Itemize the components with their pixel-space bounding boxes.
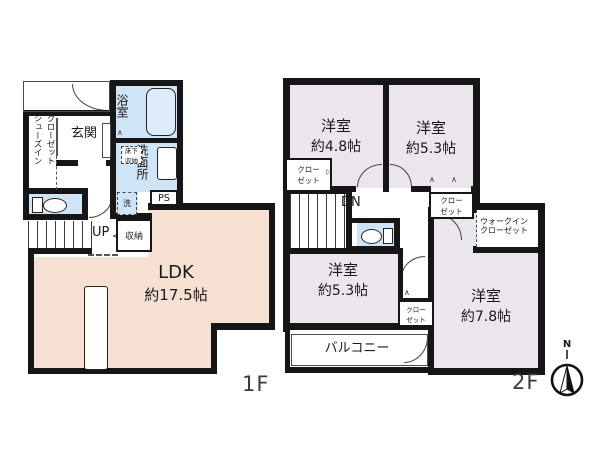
stairs-down-label: DN [341, 196, 361, 211]
balcony-label: バルコニー [325, 342, 390, 356]
wall [82, 194, 88, 220]
room-ldk [211, 257, 269, 323]
open-boundary-dashed [88, 254, 118, 256]
entrance-step [102, 123, 111, 158]
room-bedroom53b-label: 洋室 [328, 262, 358, 279]
wall [116, 138, 177, 143]
floor-label-1f: 1F [242, 372, 269, 396]
floor-plan: 玄関 シューズイン クローゼット 浴室 洗面所 床下 収納 洗 PS UP < … [0, 0, 600, 450]
wall [211, 323, 275, 330]
wall [411, 186, 431, 192]
wall [352, 218, 400, 223]
room-ldk-label: LDK [158, 263, 194, 283]
wall [283, 78, 480, 85]
room-bedroom48-size: 約4.8帖 [311, 140, 361, 155]
wall [285, 367, 434, 373]
wall [473, 203, 545, 210]
room-bedroom53a-size: 約5.3帖 [406, 142, 456, 157]
stairs-up-label: UP [92, 226, 109, 241]
room-ldk-size: 約17.5帖 [144, 287, 207, 304]
closet-box-2f-b: クロー ゼット [429, 192, 474, 219]
compass-north-label: N [563, 339, 571, 350]
closet-box-2f-a: クロー ゼット [285, 158, 332, 192]
wall [23, 214, 88, 220]
room-bathroom-label: 浴室 [116, 94, 128, 118]
folding-door-mark: ∧ [451, 176, 457, 184]
folding-door-mark: ∧ [429, 176, 435, 184]
pipe-space-box: PS [150, 190, 178, 206]
wall [473, 85, 480, 210]
kitchen-counter [84, 286, 108, 370]
wall [23, 110, 29, 220]
wall [330, 186, 356, 192]
toilet-tank-2f [383, 228, 393, 244]
washer-space-box: 洗 [117, 192, 137, 215]
wall [538, 210, 545, 375]
wall [383, 85, 389, 192]
partition-line [56, 118, 58, 156]
wall [110, 80, 183, 86]
folding-door-mark: ∧ [117, 129, 123, 137]
wall [283, 248, 403, 254]
toilet-bowl-2f [361, 229, 382, 244]
folding-door-mark: ∧ [404, 289, 410, 297]
room-bedroom48-label: 洋室 [321, 118, 351, 135]
wall [211, 330, 217, 374]
stairs-1f [28, 221, 92, 248]
toilet-bowl-1f [43, 198, 67, 213]
bedroom53b-door-arc [401, 256, 425, 278]
room-shoes-closet-label: シューズイン クローゼット [31, 114, 56, 165]
room-bedroom53a-label: 洋室 [416, 120, 446, 137]
entrance-porch-outline [23, 81, 110, 112]
stairs-2f [290, 194, 346, 248]
wall [28, 252, 34, 374]
wall [56, 160, 78, 166]
floor-label-2f: 2F [512, 370, 539, 394]
bathtub [146, 88, 176, 136]
wall [269, 210, 275, 330]
walkin-closet-label: ウォークイン クローゼット [480, 217, 528, 235]
closet-slide-mark: ▷ [326, 169, 331, 176]
room-ldk [148, 210, 269, 257]
wall [398, 254, 403, 302]
wall [28, 368, 217, 374]
wall [473, 246, 538, 253]
room-bedroom78-label: 洋室 [471, 288, 501, 305]
wall [283, 85, 290, 332]
closet-box-2f-c: クロー ゼット [398, 300, 434, 327]
underfloor-storage-box: 床下 収納 [121, 146, 142, 164]
toilet-tank-1f [32, 197, 43, 213]
room-bedroom53b-size: 約5.3帖 [318, 284, 368, 299]
room-entrance-label: 玄関 [71, 127, 97, 141]
partition-line-dashed [56, 156, 58, 190]
wall [28, 248, 92, 254]
wall [285, 330, 290, 373]
compass-icon [549, 350, 585, 400]
room-bedroom78-size: 約7.8帖 [461, 310, 511, 325]
storage-box-1f: 収納 [116, 219, 152, 252]
washbasin-counter [157, 147, 177, 180]
wall [394, 218, 400, 252]
